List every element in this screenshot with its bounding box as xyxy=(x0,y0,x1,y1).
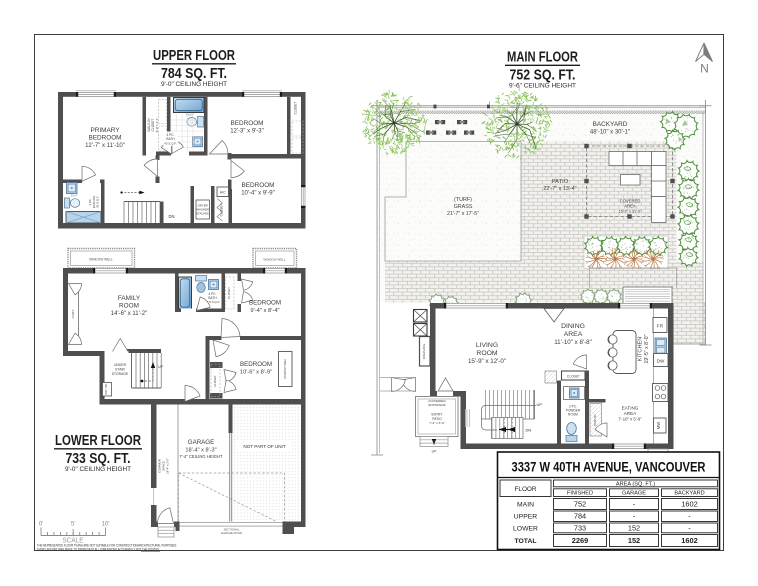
svg-text:19'-5" x 8'-0": 19'-5" x 8'-0" xyxy=(644,334,650,363)
svg-text:MAIN: MAIN xyxy=(517,501,534,508)
svg-text:UPPER FLOOR: UPPER FLOOR xyxy=(153,48,235,64)
svg-text:ROOM: ROOM xyxy=(568,413,578,417)
svg-text:AREA (SQ. FT.): AREA (SQ. FT.) xyxy=(616,481,655,487)
svg-text:AREA: AREA xyxy=(624,411,637,416)
svg-text:MW: MW xyxy=(656,422,661,429)
svg-text:18'-4" x 3'-0": 18'-4" x 3'-0" xyxy=(166,458,170,474)
svg-text:INST. HW: INST. HW xyxy=(105,384,108,395)
svg-text:PRIMARY: PRIMARY xyxy=(90,127,120,134)
svg-text:BEDROOM: BEDROOM xyxy=(240,361,272,368)
svg-text:GRASS: GRASS xyxy=(454,204,473,210)
svg-text:733: 733 xyxy=(574,523,586,532)
svg-text:CLOSET: CLOSET xyxy=(567,374,580,378)
svg-text:BEDROOM: BEDROOM xyxy=(88,135,121,142)
svg-text:STACKED: STACKED xyxy=(196,212,209,216)
svg-text:WINDOW WELL: WINDOW WELL xyxy=(89,258,113,262)
svg-text:1602: 1602 xyxy=(681,499,697,508)
svg-text:10'-4" x 9'-9": 10'-4" x 9'-9" xyxy=(241,191,275,197)
svg-text:BEDROOM: BEDROOM xyxy=(241,182,274,189)
svg-text:AREA: AREA xyxy=(624,204,636,209)
svg-text:FAMILY: FAMILY xyxy=(118,295,141,302)
svg-text:KITCHEN: KITCHEN xyxy=(638,337,644,362)
svg-text:(TURF): (TURF) xyxy=(454,197,472,203)
svg-text:FINISHED: FINISHED xyxy=(567,491,593,497)
svg-text:EVERY EFFORT WAS MADE TO REPRE: EVERY EFFORT WAS MADE TO REPRESENT ALL D… xyxy=(37,547,160,551)
svg-text:ROOM: ROOM xyxy=(119,303,139,310)
svg-text:ENTRANCE: ENTRANCE xyxy=(428,403,445,407)
svg-text:CLOSET: CLOSET xyxy=(213,375,217,387)
svg-text:FLOOR: FLOOR xyxy=(514,486,536,493)
svg-text:GARAGE DOOR: GARAGE DOOR xyxy=(221,531,242,535)
svg-text:DINING: DINING xyxy=(561,323,585,330)
svg-text:12'-3" x 9'-3": 12'-3" x 9'-3" xyxy=(230,129,264,135)
svg-text:1602: 1602 xyxy=(681,536,697,545)
svg-text:LOWER: LOWER xyxy=(513,525,538,532)
svg-text:GARAGE: GARAGE xyxy=(188,439,214,446)
svg-text:7'-10" x 5'-6": 7'-10" x 5'-6" xyxy=(618,417,642,422)
svg-text:UP: UP xyxy=(158,365,164,369)
svg-text:12'-7" x 11'-10": 12'-7" x 11'-10" xyxy=(85,143,125,149)
svg-text:N: N xyxy=(700,62,709,76)
svg-text:AREA: AREA xyxy=(564,331,583,338)
svg-text:ROOM: ROOM xyxy=(476,350,497,357)
svg-text:10': 10' xyxy=(101,521,109,528)
svg-text:2269: 2269 xyxy=(572,536,588,545)
svg-text:GARAGE: GARAGE xyxy=(622,491,646,497)
svg-text:DW: DW xyxy=(657,359,665,364)
svg-text:20"x4': 20"x4' xyxy=(71,195,78,198)
svg-text:PATIO: PATIO xyxy=(552,179,569,185)
svg-text:48'-10" x 30'-1": 48'-10" x 30'-1" xyxy=(590,130,630,136)
svg-text:PANTRY: PANTRY xyxy=(593,414,597,426)
svg-text:5': 5' xyxy=(71,521,76,528)
svg-text:MAIN FLOOR: MAIN FLOOR xyxy=(507,50,578,66)
svg-text:8'-0" x 3'-1": 8'-0" x 3'-1" xyxy=(155,118,159,133)
svg-text:EATING: EATING xyxy=(622,406,639,411)
svg-text:UPPER: UPPER xyxy=(514,514,538,521)
svg-text:752 SQ. FT.: 752 SQ. FT. xyxy=(510,67,576,84)
svg-text:43 S.Q.F.: 43 S.Q.F. xyxy=(164,141,177,145)
svg-text:STORAGE: STORAGE xyxy=(112,372,129,376)
svg-text:784 SQ. FT.: 784 SQ. FT. xyxy=(161,65,227,82)
svg-text:11'-10" x 8'-8": 11'-10" x 8'-8" xyxy=(554,339,592,346)
svg-text:NOT PART OF UNIT: NOT PART OF UNIT xyxy=(243,444,285,449)
svg-text:21'-7" x 17'-5": 21'-7" x 17'-5" xyxy=(447,211,479,217)
svg-text:BEDROOM: BEDROOM xyxy=(230,120,263,127)
svg-text:BACKYARD: BACKYARD xyxy=(674,491,704,497)
svg-text:152: 152 xyxy=(628,523,640,532)
svg-text:0': 0' xyxy=(39,521,44,528)
svg-text:TOTAL: TOTAL xyxy=(514,538,536,545)
svg-text:9'-0" CEILING HEIGHT: 9'-0" CEILING HEIGHT xyxy=(161,81,227,88)
svg-text:15'-9" x 12'-0": 15'-9" x 12'-0" xyxy=(468,358,506,365)
svg-text:DN: DN xyxy=(169,214,175,219)
svg-text:7'-4" CEILING HEIGHT: 7'-4" CEILING HEIGHT xyxy=(179,454,223,459)
svg-text:9'-0" CEILING HEIGHT: 9'-0" CEILING HEIGHT xyxy=(65,466,131,473)
svg-text:FIREPLACE: FIREPLACE xyxy=(422,344,426,360)
svg-text:A/C: A/C xyxy=(220,191,226,195)
svg-text:UP: UP xyxy=(537,402,543,407)
svg-text:784: 784 xyxy=(574,512,586,521)
svg-text:10'-6" x 8'-9": 10'-6" x 8'-9" xyxy=(240,370,272,376)
svg-text:LOWER FLOOR: LOWER FLOOR xyxy=(55,433,141,449)
svg-text:14'-6" x 11'-2": 14'-6" x 11'-2" xyxy=(111,311,147,317)
svg-text:22'-7" x 13'-4": 22'-7" x 13'-4" xyxy=(543,186,576,192)
svg-text:BACKYARD: BACKYARD xyxy=(593,121,628,128)
svg-text:UP: UP xyxy=(432,450,437,454)
svg-text:DN: DN xyxy=(526,428,532,433)
svg-text:18'-4" x 8'-3": 18'-4" x 8'-3" xyxy=(185,448,216,454)
svg-text:FR: FR xyxy=(657,324,664,330)
svg-text:38 S.Q.F.: 38 S.Q.F. xyxy=(95,196,99,208)
svg-text:CLOSET: CLOSET xyxy=(294,102,298,115)
svg-text:STAIR: STAIR xyxy=(115,368,125,372)
svg-text:152: 152 xyxy=(628,536,640,545)
svg-text:CLOSET: CLOSET xyxy=(227,287,231,299)
svg-text:BEDROOM: BEDROOM xyxy=(249,300,281,307)
svg-text:UNDER: UNDER xyxy=(114,363,127,367)
svg-text:MURPHY BED: MURPHY BED xyxy=(283,359,287,378)
svg-text:WINDOW WELL: WINDOW WELL xyxy=(263,258,285,262)
svg-text:752: 752 xyxy=(574,499,586,508)
svg-text:COATS: COATS xyxy=(71,309,75,318)
svg-text:15'-0" x 11'-0": 15'-0" x 11'-0" xyxy=(618,210,642,214)
svg-text:7'-4" x 3'-9": 7'-4" x 3'-9" xyxy=(429,421,445,425)
svg-text:733 SQ. FT.: 733 SQ. FT. xyxy=(66,450,131,467)
svg-text:9'-4" x 8'-4": 9'-4" x 8'-4" xyxy=(250,308,279,314)
svg-text:LIVING: LIVING xyxy=(476,342,498,349)
svg-text:3337 W 40TH AVENUE, VANCOUVER: 3337 W 40TH AVENUE, VANCOUVER xyxy=(512,460,706,475)
